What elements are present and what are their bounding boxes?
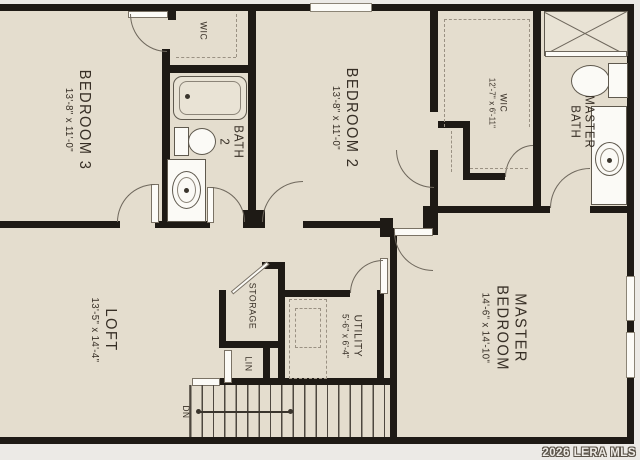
wall-segment — [219, 290, 226, 348]
wall-segment — [219, 341, 285, 348]
wall-segment — [170, 65, 256, 73]
arrow-end-dot — [196, 409, 201, 414]
wall-segment — [248, 11, 256, 217]
window — [626, 276, 635, 321]
closet-shelf-dashes — [470, 168, 528, 169]
room-label-master-bath: MASTER BATH — [568, 95, 597, 148]
closet-shelf-dashes — [176, 57, 236, 58]
tub-drain — [185, 94, 190, 99]
wall-segment — [0, 437, 634, 444]
wall-segment — [278, 290, 350, 297]
mls-watermark: 2026 LERA MLS — [542, 447, 636, 459]
toilet-bowl — [571, 65, 610, 97]
room-label-loft: LOFT 13'-5" x 14'-4" — [89, 298, 119, 363]
room-label-storage: STORAGE — [246, 283, 257, 329]
shower-glass — [545, 51, 627, 57]
wall-segment — [303, 221, 390, 228]
wall-segment — [372, 4, 634, 11]
wall-segment — [155, 221, 210, 228]
wall-segment — [463, 128, 470, 180]
room-label-wic-master: WIC 12'-7" x 6'-11" — [487, 78, 508, 128]
room-label-wic-bedroom3: WIC — [197, 22, 208, 41]
toilet-fixture — [608, 63, 628, 98]
room-label-utility: UTILITY 5'-6" x 6'-4" — [341, 314, 364, 358]
room-label-bath-2: BATH 2 — [217, 125, 246, 159]
wall-segment — [390, 228, 397, 443]
room-label-bedroom-3: BEDROOM 3 13'-8" x 11'-0" — [63, 70, 93, 171]
wall-segment — [168, 11, 176, 20]
wall-segment — [627, 4, 634, 276]
wall-segment — [0, 221, 120, 228]
closet-shelf-dashes — [451, 131, 452, 172]
closet-shelf-dashes — [236, 14, 237, 57]
wall-segment — [430, 11, 438, 112]
window — [626, 332, 635, 378]
wall-segment — [438, 206, 550, 213]
wall-segment — [0, 4, 310, 11]
stair-direction-arrow — [199, 411, 291, 413]
arrow-end-dot — [288, 409, 293, 414]
window — [310, 3, 372, 12]
sink-drain — [607, 158, 612, 163]
wall-segment — [377, 290, 384, 385]
floor-plan: BEDROOM 3 13'-8" x 11'-0" WIC BATH 2 BED… — [0, 0, 640, 460]
wall-segment — [533, 11, 541, 206]
room-label-master-bedroom: MASTER BEDROOM 14'-6" x 14'-10" — [480, 285, 529, 371]
wall-segment — [590, 206, 634, 213]
room-label-bedroom-2: BEDROOM 2 13'-8" x 11'-0" — [330, 68, 360, 169]
wall-segment — [219, 378, 390, 385]
toilet-fixture — [174, 127, 189, 156]
toilet-bowl — [188, 128, 216, 155]
stairs-down-label: DN — [181, 406, 191, 419]
door-leaf — [224, 350, 232, 383]
sink-drain — [184, 188, 189, 193]
room-label-linen: LIN — [242, 356, 253, 371]
washer-dryer-outline — [295, 308, 321, 348]
wall-segment — [627, 377, 634, 444]
wall-segment — [278, 262, 285, 383]
